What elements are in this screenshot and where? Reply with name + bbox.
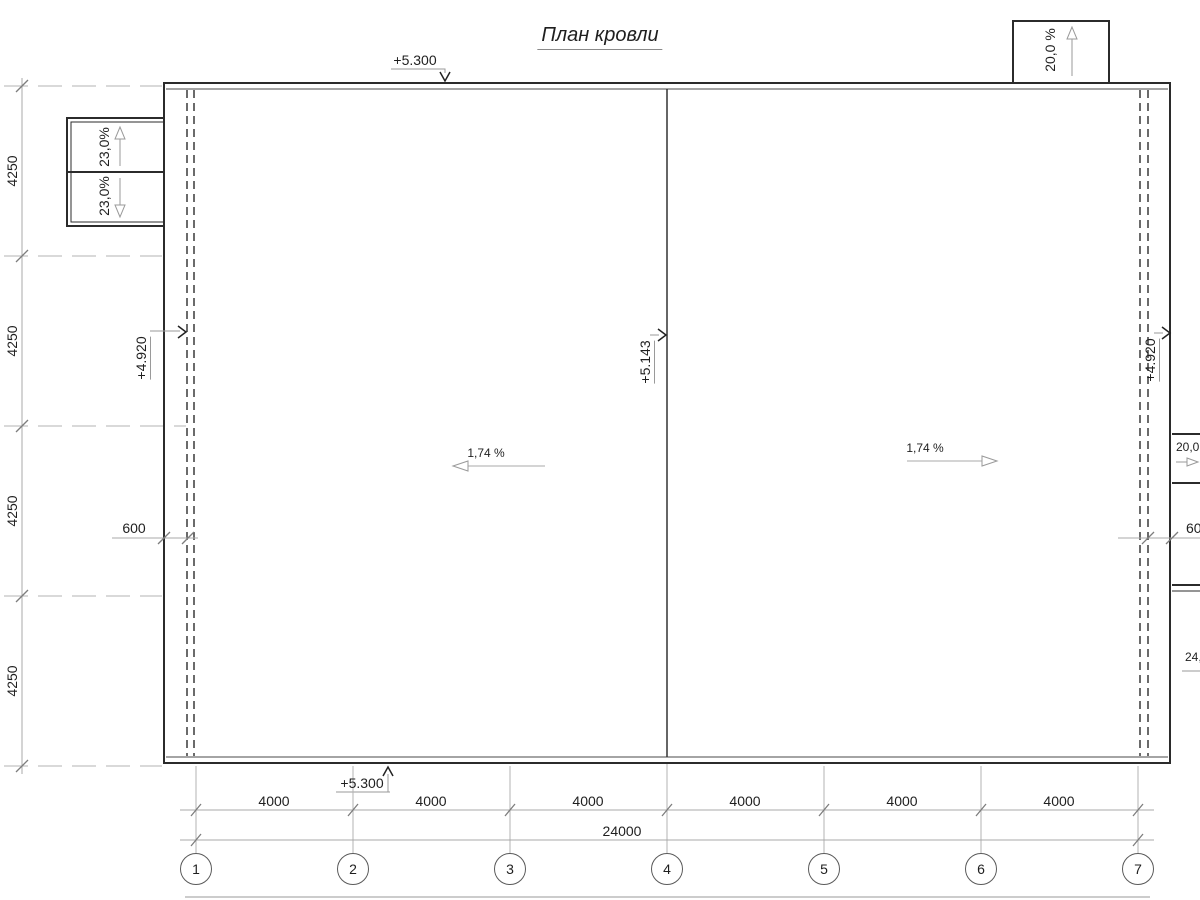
elevation-label-ridge: +5.143	[637, 340, 655, 383]
dim-left-4250-2: 4250	[4, 325, 20, 356]
top-right-canopy-arrow	[1067, 27, 1077, 76]
dim-left-4250-4: 4250	[4, 665, 20, 696]
dim-span-4000-1: 4000	[258, 793, 289, 809]
axis-bubble-3: 3	[494, 853, 526, 885]
dim-left-4250-1: 4250	[4, 155, 20, 186]
dim-parapet-600-left: 600	[122, 520, 145, 536]
dim-span-4000-2: 4000	[415, 793, 446, 809]
top-right-canopy	[1013, 21, 1109, 83]
drawing-linework	[0, 0, 1200, 900]
slope-label-top-left-canopy-lower: 23,0%	[96, 176, 112, 216]
slope-label-top-right-canopy: 20,0 %	[1042, 28, 1058, 72]
dim-span-4000-6: 4000	[1043, 793, 1074, 809]
slope-label-right-roof: 1,74 %	[906, 441, 943, 455]
leader-ridge-5143	[650, 329, 666, 341]
leader-right-4920	[1154, 327, 1170, 339]
dim-span-4000-5: 4000	[886, 793, 917, 809]
drawing-title: План кровли	[537, 24, 662, 50]
axis-bubble-6: 6	[965, 853, 997, 885]
elevation-label-right-eave: +4.920	[1142, 338, 1160, 381]
slope-label-left-roof: 1,74 %	[467, 446, 504, 460]
dim-total-24000: 24000	[603, 823, 642, 839]
dim-left-4250-3: 4250	[4, 495, 20, 526]
left-extension-lines	[4, 86, 186, 766]
axis-bubble-4: 4	[651, 853, 683, 885]
leader-left-4920	[150, 326, 186, 338]
axis-bubble-7: 7	[1122, 853, 1154, 885]
slope-arrow-right	[907, 456, 997, 466]
slope-label-top-left-canopy-upper: 23,0%	[96, 127, 112, 167]
axis-bubble-2: 2	[337, 853, 369, 885]
slope-label-right-canopy-lower: 24,	[1185, 650, 1200, 664]
dim-span-4000-4: 4000	[729, 793, 760, 809]
elevation-label-bottom: +5.300	[340, 775, 383, 791]
right-canopy-upper-arrow	[1176, 458, 1198, 466]
top-left-canopy	[67, 118, 164, 226]
dim-span-4000-3: 4000	[572, 793, 603, 809]
axis-bubble-1: 1	[180, 853, 212, 885]
dim-parapet-600-right: 600	[1186, 520, 1200, 536]
elevation-label-left-eave: +4.920	[133, 336, 151, 379]
roof-plan-drawing: План кровли +5.300 +5.300 +4.920 +5.143 …	[0, 0, 1200, 900]
slope-arrow-left	[453, 461, 545, 471]
leader-top-5300	[391, 69, 450, 81]
axis-bubble-5: 5	[808, 853, 840, 885]
slope-label-right-canopy-upper: 20,0	[1176, 440, 1199, 454]
elevation-label-top: +5.300	[393, 52, 436, 68]
